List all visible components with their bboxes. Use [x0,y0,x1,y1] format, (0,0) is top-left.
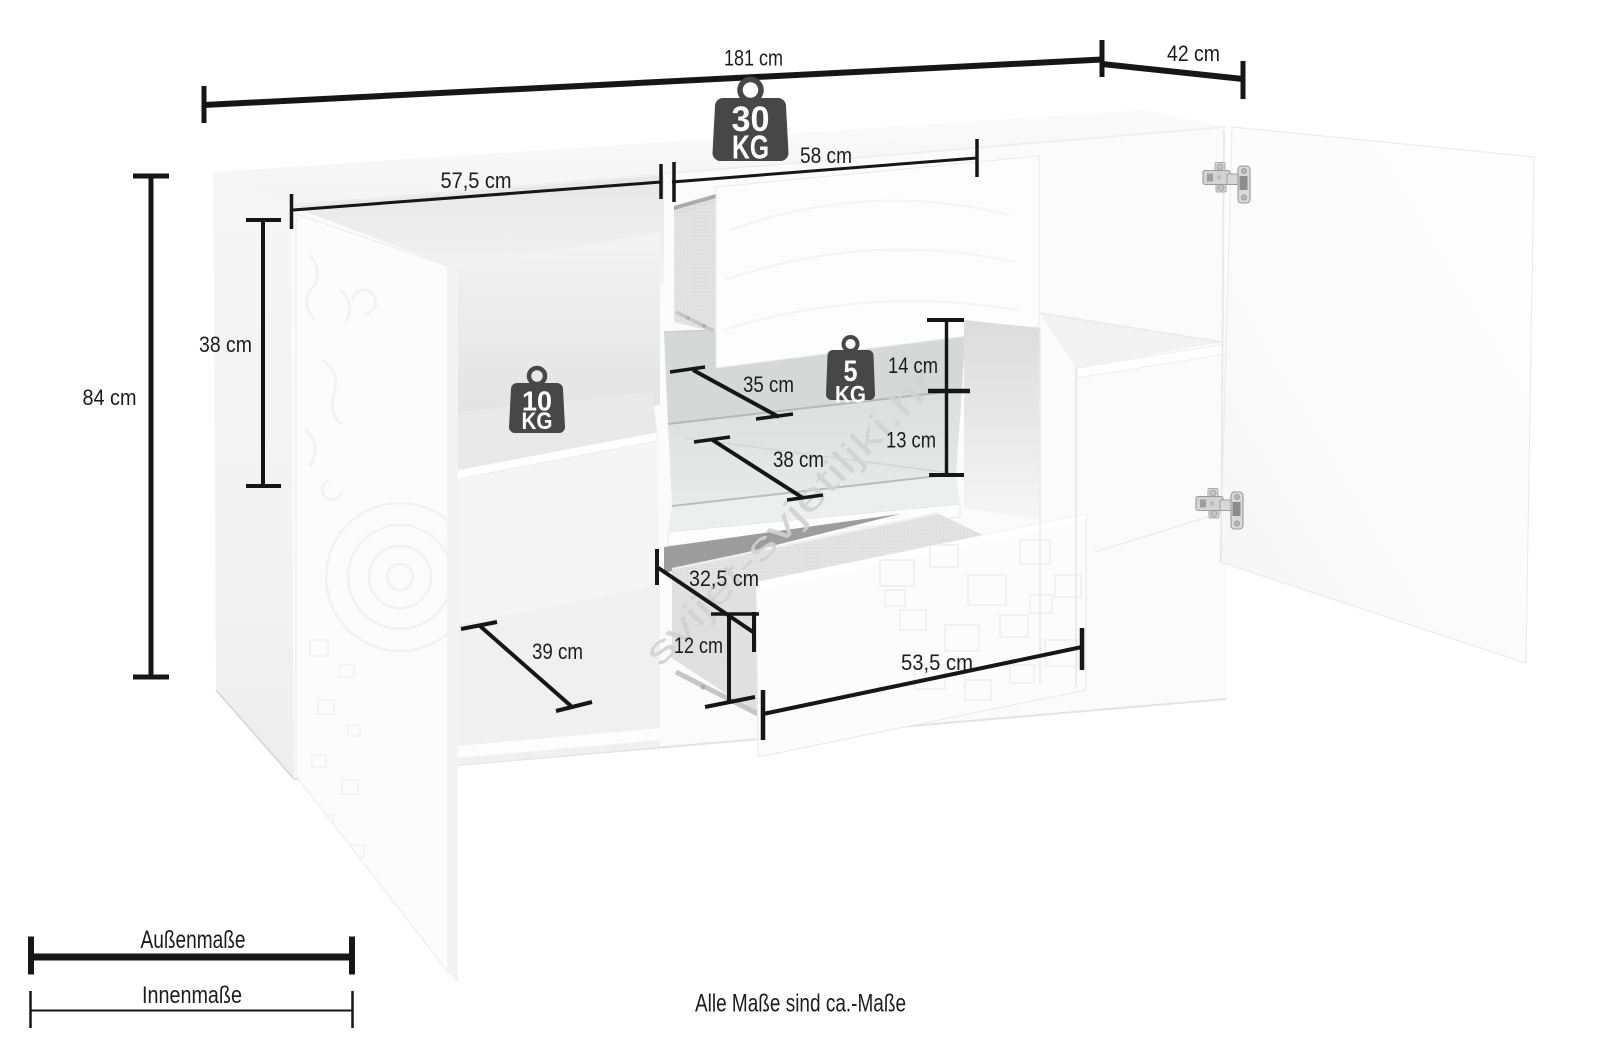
svg-text:38 cm: 38 cm [773,447,824,472]
svg-text:KG: KG [835,382,866,409]
svg-text:84 cm: 84 cm [83,385,137,410]
svg-text:42 cm: 42 cm [1167,41,1220,66]
svg-text:12 cm: 12 cm [674,633,723,658]
svg-text:57,5 cm: 57,5 cm [441,168,512,193]
svg-text:58 cm: 58 cm [800,143,852,168]
svg-text:Außenmaße: Außenmaße [141,926,246,954]
svg-text:38 cm: 38 cm [199,332,252,357]
svg-text:13 cm: 13 cm [886,428,936,453]
svg-text:35 cm: 35 cm [743,372,794,397]
svg-text:39 cm: 39 cm [532,639,583,664]
svg-text:181 cm: 181 cm [724,46,783,71]
svg-text:KG: KG [732,129,769,166]
svg-text:14 cm: 14 cm [888,353,938,378]
svg-text:32,5 cm: 32,5 cm [689,566,759,591]
svg-text:KG: KG [522,408,553,435]
svg-text:53,5 cm: 53,5 cm [901,650,973,675]
svg-text:Alle Maße sind ca.-Maße: Alle Maße sind ca.-Maße [695,990,906,1018]
svg-text:Innenmaße: Innenmaße [142,982,242,1009]
